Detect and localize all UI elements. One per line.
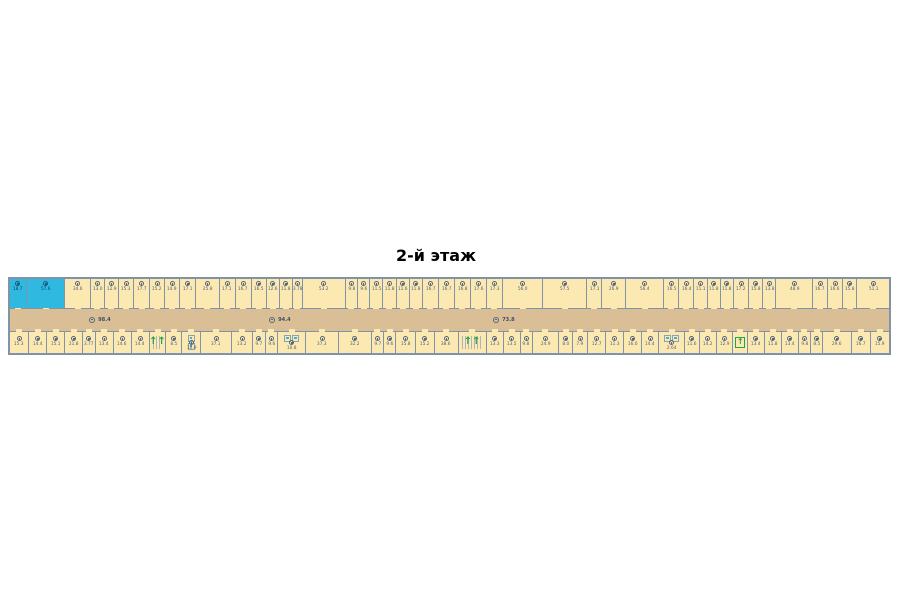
room-label: 11.6: [685, 336, 698, 348]
door-opening: [563, 329, 569, 332]
room-number-circle: [71, 336, 76, 341]
room: 14.4: [29, 332, 47, 354]
room-area: 21.8: [69, 342, 79, 346]
room-area: 11.8: [281, 287, 291, 291]
room-label: 12.9: [105, 281, 118, 293]
corridor-area-label: 94.4: [269, 317, 292, 323]
room-number-circle: [241, 281, 246, 286]
room-label: 15.3: [119, 281, 132, 293]
room-label: 17.1: [181, 281, 194, 293]
room-area: 11.3: [610, 342, 620, 346]
room: 11.8: [383, 279, 396, 308]
stairwell: ↑↑: [150, 332, 167, 354]
room-area: 15.8: [845, 287, 855, 291]
room: 11.1: [694, 279, 707, 308]
room-label: 13.4: [97, 336, 110, 348]
room-area: 14.4: [33, 342, 43, 346]
room: 16.7: [439, 279, 455, 308]
room-area: 25.8: [203, 287, 213, 291]
room-highlighted: 57.6: [27, 279, 65, 308]
room-area: 9.8: [523, 342, 530, 346]
room-area: 51.1: [868, 287, 878, 291]
room-area: 3.78: [292, 287, 302, 291]
wc-cell: [664, 335, 671, 342]
room: 11.3: [606, 332, 624, 354]
room-label: 16.5: [665, 281, 678, 293]
room-number-circle: [15, 281, 20, 286]
room-number-circle: [185, 281, 190, 286]
lift-icon: ↑: [735, 337, 745, 349]
room: 11.8: [708, 279, 721, 308]
door-opening: [319, 329, 325, 332]
room: 56.4: [626, 279, 664, 308]
stairwell: ↑↑: [459, 332, 487, 354]
room-area: 38.6: [441, 342, 451, 346]
room-number-circle: [171, 336, 176, 341]
room-area: 24.9: [541, 342, 551, 346]
room: 17.2: [734, 279, 749, 308]
room-label: 8.5: [169, 336, 179, 348]
room-label: 13.3: [488, 336, 501, 348]
room-number-circle: [689, 336, 694, 341]
door-opening: [387, 329, 393, 332]
room: 16.7: [813, 279, 828, 308]
room-number-circle: [711, 281, 716, 286]
room-area: 8.0: [562, 342, 569, 346]
room-area: 3.77: [84, 342, 94, 346]
room-label: 13.2: [235, 336, 248, 348]
door-opening: [155, 329, 161, 332]
room-number-circle: [95, 281, 100, 286]
room-label: 57.6: [39, 281, 52, 293]
room-area: 12.9: [107, 287, 117, 291]
room-label: 14.4: [31, 336, 44, 348]
room-area: 32.2: [350, 342, 360, 346]
door-opening: [770, 329, 776, 332]
room-label: 11.8: [383, 281, 396, 293]
room-area: 9.7: [374, 342, 381, 346]
room-label: 15.1: [49, 336, 62, 348]
room-label: 11.8: [279, 281, 292, 293]
room-label: 16.0: [626, 336, 639, 348]
room: 13.0: [91, 279, 105, 308]
room-label: 7.9: [575, 336, 585, 348]
room-row-top: 18.757.634.613.012.915.317.715.214.917.1…: [10, 279, 889, 309]
wc-cells: [184, 334, 198, 352]
room-label: 12.6: [266, 281, 279, 293]
room-number-circle: [109, 281, 114, 286]
room-area: 56.4: [640, 287, 650, 291]
corridor-area-value: 73.8: [503, 317, 516, 322]
room: 11.6: [397, 279, 410, 308]
room: 13.4: [748, 332, 765, 354]
room-number-circle: [684, 281, 689, 286]
room: 13.5: [504, 332, 521, 354]
room-area: 11.8: [411, 287, 421, 291]
door-opening: [705, 329, 711, 332]
room-number-circle: [562, 281, 567, 286]
room: 3.78: [293, 279, 302, 308]
room-number-circle: [102, 336, 107, 341]
door-opening: [443, 329, 449, 332]
room-area: 11.8: [722, 287, 732, 291]
room-area: 9.6: [268, 342, 275, 346]
room-area: 17.1: [183, 287, 193, 291]
room-label: 16.8: [456, 281, 469, 293]
room: 14.6: [114, 332, 132, 354]
room-area: 13.4: [99, 342, 109, 346]
room: 11.5: [370, 279, 383, 308]
door-opening: [422, 329, 428, 332]
room-label: 32.2: [348, 336, 361, 348]
room-area: 18.7: [13, 287, 23, 291]
door-opening: [53, 329, 59, 332]
room-area: 29.6: [832, 342, 842, 346]
room-label: 16.7: [236, 281, 249, 293]
room-label: 13.5: [505, 336, 518, 348]
room: 17.1: [220, 279, 236, 308]
room-area: 13.0: [93, 287, 103, 291]
room-label: 18.7: [11, 281, 24, 293]
room-area: 13.4: [785, 342, 795, 346]
room-number-circle: [802, 336, 807, 341]
stairs-up-icon: ↑↑: [150, 332, 166, 354]
room-label: 14.4: [643, 336, 656, 348]
room: 11.6: [685, 332, 700, 354]
door-opening: [669, 329, 675, 332]
room: 57.5: [543, 279, 587, 308]
room-number-circle: [818, 281, 823, 286]
room: 15.2: [416, 332, 435, 354]
room-number-circle: [428, 281, 433, 286]
room-area: 15.2: [420, 342, 430, 346]
room-label: 16.7: [813, 281, 826, 293]
door-opening: [647, 329, 653, 332]
room-label: 15.2: [418, 336, 431, 348]
door-opening: [814, 329, 820, 332]
room: 15.3: [119, 279, 134, 308]
room-area: 11.6: [398, 287, 408, 291]
room-label: 17.3: [488, 281, 501, 293]
room-area: 13.2: [237, 342, 247, 346]
room-label: 11.6: [396, 281, 409, 293]
room: 48.9: [776, 279, 813, 308]
room: 8.0: [559, 332, 574, 354]
room-number-circle: [422, 336, 427, 341]
room-label: 8.5: [812, 336, 822, 348]
room-area: 16.7: [815, 287, 825, 291]
room-area: 16.5: [667, 287, 677, 291]
wc-block: 10.9: [182, 332, 201, 354]
room-label: 15.8: [399, 336, 412, 348]
room: 26.9: [602, 279, 625, 308]
room-label: 53.2: [317, 281, 330, 293]
room-number-circle: [155, 281, 160, 286]
room-label: 25.8: [201, 281, 214, 293]
room-number-circle: [492, 336, 497, 341]
room-number-circle: [43, 281, 48, 286]
room-number-circle: [444, 281, 449, 286]
door-opening: [256, 329, 262, 332]
room-label: 8.0: [561, 336, 571, 348]
room: 9.6: [358, 279, 370, 308]
room-number-circle: [138, 336, 143, 341]
room-number-circle: [270, 281, 275, 286]
room: 16.4: [679, 279, 694, 308]
room: 29.6: [823, 332, 851, 354]
door-opening: [403, 329, 409, 332]
room-label: 9.6: [359, 281, 369, 293]
room-area: 53.2: [319, 287, 329, 291]
room: 9.7: [372, 332, 384, 354]
door-opening: [787, 329, 793, 332]
room: 32.2: [339, 332, 372, 354]
room-number-circle: [792, 281, 797, 286]
room: 15.8: [396, 332, 415, 354]
room-number-circle: [669, 281, 674, 286]
wc-cell: [188, 343, 195, 350]
room: 11.8: [280, 279, 293, 308]
room-label: 17.6: [472, 281, 485, 293]
room: 11.8: [765, 332, 782, 354]
room: 15.8: [843, 279, 857, 308]
room-label: 11.8: [720, 281, 733, 293]
room: 15.2: [150, 279, 165, 308]
room-label: 16.6: [828, 281, 841, 293]
room-area: 11.1: [696, 287, 706, 291]
room-area: 11.8: [709, 287, 719, 291]
room-number-circle: [630, 336, 635, 341]
room: 38.6: [435, 332, 459, 354]
room-area: 14.6: [117, 342, 127, 346]
room: 11.8: [721, 279, 734, 308]
door-opening: [721, 329, 727, 332]
room: 24.9: [533, 332, 559, 354]
room-area: 8.5: [170, 342, 177, 346]
room-label: 37.1: [209, 336, 222, 348]
room-number-circle: [492, 281, 497, 286]
room: 17.1: [587, 279, 602, 308]
wc-cell: [284, 335, 291, 342]
room-label: 13.4: [783, 336, 796, 348]
room-number-circle: [858, 336, 863, 341]
corridor-number-circle: [269, 317, 275, 323]
room-label: 11.1: [694, 281, 707, 293]
room-number-circle: [877, 336, 882, 341]
room-label: 15.3: [12, 336, 25, 348]
room-label: 11.8: [766, 336, 779, 348]
room-label: 38.6: [439, 336, 452, 348]
room: 15.9: [871, 332, 889, 354]
wc-cell: [672, 335, 679, 342]
room-number-circle: [53, 336, 58, 341]
door-opening: [689, 329, 695, 332]
room-number-circle: [753, 336, 758, 341]
room: 14.9: [165, 279, 180, 308]
room-label: 48.9: [788, 281, 801, 293]
room-number-circle: [787, 336, 792, 341]
corridor-area-value: 94.4: [278, 317, 291, 322]
room: 17.6: [471, 279, 487, 308]
room-area: 13.3: [490, 342, 500, 346]
room-label: 11.8: [707, 281, 720, 293]
wc-block: 2.64: [659, 332, 685, 354]
room-area: 14.4: [645, 342, 655, 346]
room-number-circle: [444, 336, 449, 341]
room-area: 9.8: [801, 342, 808, 346]
room: 13.4: [782, 332, 799, 354]
room-label: 57.5: [558, 281, 571, 293]
room-area: 16.6: [830, 287, 840, 291]
floor-title: 2-й этаж: [396, 246, 476, 265]
room-number-circle: [642, 281, 647, 286]
room-area: 12.9: [720, 342, 730, 346]
room: 12.9: [717, 332, 734, 354]
room-area: 16.8: [458, 287, 468, 291]
room-area: 37.1: [211, 342, 221, 346]
room-number-circle: [403, 336, 408, 341]
room-area: 9.6: [360, 287, 367, 291]
room-area: 15.8: [751, 287, 761, 291]
room-area: 15.9: [875, 342, 885, 346]
room: 8.5: [811, 332, 823, 354]
room-label: 29.6: [830, 336, 843, 348]
room-number-circle: [476, 281, 481, 286]
door-opening: [801, 329, 807, 332]
room-number-circle: [375, 336, 380, 341]
room: 13.4: [96, 332, 114, 354]
room-label: 11.8: [409, 281, 422, 293]
room: 16.5: [664, 279, 679, 308]
room-number-circle: [722, 336, 727, 341]
room-number-circle: [35, 336, 40, 341]
room: 13.3: [487, 332, 504, 354]
room-number-circle: [321, 281, 326, 286]
room-area: 11.8: [385, 287, 395, 291]
room-number-circle: [295, 281, 300, 286]
room-number-circle: [612, 336, 617, 341]
room: 17.7: [134, 279, 150, 308]
room: 16.8: [455, 279, 471, 308]
room-area: 14.4: [135, 342, 145, 346]
door-opening: [753, 329, 759, 332]
door-opening: [737, 329, 743, 332]
room-number-circle: [592, 281, 597, 286]
room-label: 9.7: [373, 336, 383, 348]
room-number-circle: [352, 336, 357, 341]
door-opening: [171, 329, 177, 332]
room: 16.7: [423, 279, 439, 308]
room-number-circle: [256, 281, 261, 286]
room-area: 16.7: [442, 287, 452, 291]
room-label: 9.7: [254, 336, 264, 348]
corridor: 98.494.473.8: [10, 309, 889, 331]
door-opening: [101, 329, 107, 332]
room-label: 17.7: [135, 281, 148, 293]
room-label: 26.9: [607, 281, 620, 293]
room-number-circle: [413, 281, 418, 286]
room-number-circle: [170, 281, 175, 286]
room-area: 17.3: [490, 287, 500, 291]
room: 25.8: [196, 279, 219, 308]
door-opening: [374, 329, 380, 332]
room-label: 9.8: [347, 281, 357, 293]
room: 12.9: [105, 279, 119, 308]
room-area: 16.7: [856, 342, 866, 346]
room-area: 14.2: [703, 342, 713, 346]
room-row-bottom: 15.314.415.121.83.7713.414.614.4↑↑8.510.…: [10, 331, 889, 354]
corridor-number-circle: [493, 317, 499, 323]
room-number-circle: [524, 336, 529, 341]
room-label: 13.0: [91, 281, 104, 293]
door-opening: [119, 329, 125, 332]
room: 51.1: [857, 279, 889, 308]
room-number-circle: [205, 281, 210, 286]
room-label: 11.3: [608, 336, 621, 348]
room-area: 56.0: [518, 287, 528, 291]
room-number-circle: [139, 281, 144, 286]
room-area: 37.3: [317, 342, 327, 346]
room: 12.7: [588, 332, 606, 354]
room-number-circle: [767, 281, 772, 286]
room-number-circle: [387, 336, 392, 341]
room-number-circle: [871, 281, 876, 286]
room-number-circle: [349, 281, 354, 286]
wc-cell: [188, 335, 195, 342]
room-number-circle: [374, 281, 379, 286]
wc-block: 10.8: [278, 332, 306, 354]
room-label: 14.9: [165, 281, 178, 293]
door-opening: [352, 329, 358, 332]
room-area: 16.5: [254, 287, 264, 291]
room-number-circle: [124, 281, 129, 286]
room: 9.8: [346, 279, 358, 308]
room-area: 11.6: [687, 342, 697, 346]
room-number-circle: [724, 281, 729, 286]
room-label: 56.4: [638, 281, 651, 293]
door-opening: [834, 329, 840, 332]
room: 9.8: [799, 332, 811, 354]
room-number-circle: [320, 336, 325, 341]
room-label: 17.1: [220, 281, 233, 293]
room-number-circle: [387, 281, 392, 286]
room-label: 14.6: [115, 336, 128, 348]
room: 9.6: [384, 332, 396, 354]
room: 13.2: [232, 332, 253, 354]
room-number-circle: [256, 336, 261, 341]
room-area: 16.7: [426, 287, 436, 291]
room: 16.5: [252, 279, 267, 308]
room-label: 56.0: [516, 281, 529, 293]
room-number-circle: [509, 336, 514, 341]
room-label: 17.2: [734, 281, 747, 293]
elevator: ↑: [733, 332, 748, 354]
room-label: 51.1: [867, 281, 880, 293]
room-area: 48.9: [789, 287, 799, 291]
room-number-circle: [648, 336, 653, 341]
door-opening: [213, 329, 219, 332]
corridor-number-circle: [89, 317, 95, 323]
room-number-circle: [834, 336, 839, 341]
room: 14.4: [642, 332, 659, 354]
room-area: 15.2: [152, 287, 162, 291]
room-label: 9.6: [267, 336, 277, 348]
room: 16.7: [852, 332, 871, 354]
room-area: 7.9: [577, 342, 584, 346]
room-label: 13.4: [749, 336, 762, 348]
room-area: 16.7: [238, 287, 248, 291]
room-area: 8.5: [813, 342, 820, 346]
